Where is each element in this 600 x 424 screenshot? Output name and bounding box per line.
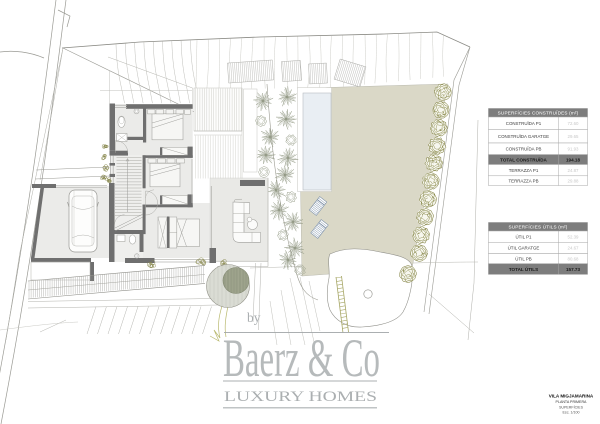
svg-text:CONSTRUÏDA PB: CONSTRUÏDA PB <box>506 147 542 152</box>
svg-text:SUPERFÍCIES CONSTRUÏDES (m²): SUPERFÍCIES CONSTRUÏDES (m²) <box>498 110 579 116</box>
svg-text:157.73: 157.73 <box>566 267 580 272</box>
svg-text:SUPERFÍCIES ÚTILS (m²): SUPERFÍCIES ÚTILS (m²) <box>508 224 567 230</box>
svg-text:VILA MIGJAMARINA: VILA MIGJAMARINA <box>549 394 594 399</box>
svg-text:TERRAZZA P1: TERRAZZA P1 <box>509 168 539 173</box>
svg-text:24.67: 24.67 <box>568 246 580 251</box>
svg-text:CONSTRUÏDA P1: CONSTRUÏDA P1 <box>506 121 542 126</box>
svg-text:SUPERFÍCIES: SUPERFÍCIES <box>559 406 584 410</box>
svg-text:80.68: 80.68 <box>568 256 580 261</box>
svg-text:24.87: 24.87 <box>568 168 580 173</box>
svg-text:TOTAL ÚTILS: TOTAL ÚTILS <box>509 266 538 272</box>
svg-text:91.93: 91.93 <box>568 147 580 152</box>
svg-text:PLANTA PRIMERA: PLANTA PRIMERA <box>556 400 587 404</box>
svg-text:ÚTIL PB: ÚTIL PB <box>515 256 531 261</box>
svg-text:CONSTRUÏDA GARATGE: CONSTRUÏDA GARATGE <box>498 134 549 139</box>
svg-text:ÚTIL GARATGE: ÚTIL GARATGE <box>508 246 540 251</box>
svg-text:TOTAL CONSTRUÏDA: TOTAL CONSTRUÏDA <box>500 156 547 162</box>
svg-text:LUXURY HOMES: LUXURY HOMES <box>224 389 377 405</box>
svg-text:Baerz & Co: Baerz & Co <box>223 328 380 388</box>
svg-text:29.88: 29.88 <box>568 178 580 183</box>
svg-text:72.60: 72.60 <box>568 121 580 126</box>
svg-text:194.18: 194.18 <box>566 157 580 162</box>
svg-text:by: by <box>247 310 261 325</box>
svg-text:TERRAZZA PB: TERRAZZA PB <box>508 178 538 183</box>
svg-text:ÚTIL P1: ÚTIL P1 <box>516 234 532 239</box>
svg-text:52.39: 52.39 <box>568 234 580 239</box>
svg-text:29.65: 29.65 <box>568 134 580 139</box>
svg-text:Esc. 1/100: Esc. 1/100 <box>563 411 580 415</box>
